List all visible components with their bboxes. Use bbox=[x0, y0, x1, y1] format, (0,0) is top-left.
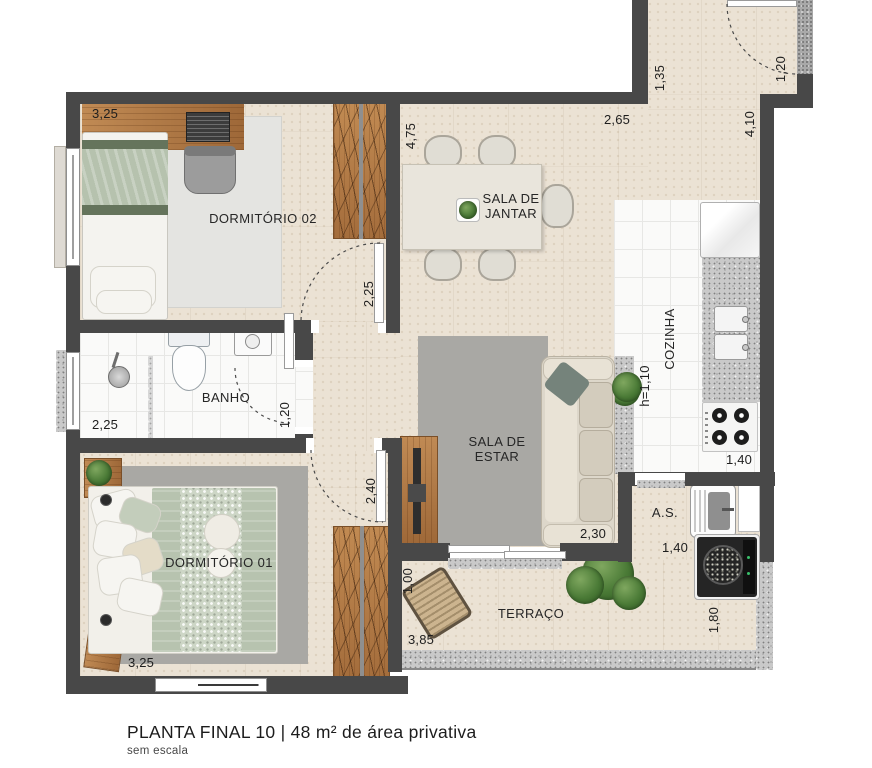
dim-dorm02-top: 3,25 bbox=[92, 106, 118, 121]
dim-as-depth: 1,80 bbox=[706, 590, 722, 650]
wall-dorm02-east bbox=[386, 92, 400, 333]
laptop-icon bbox=[186, 112, 230, 142]
washer-led-icon bbox=[747, 556, 750, 559]
terraco-plant-icon bbox=[612, 576, 646, 610]
dim-banho-width: 2,25 bbox=[92, 417, 118, 432]
dorm02-door-jamb bbox=[311, 320, 319, 333]
single-bed-pillow-2 bbox=[96, 290, 152, 314]
sliding-door-pane bbox=[504, 551, 566, 559]
lamp-icon bbox=[100, 614, 112, 626]
laundry-tank-ridges bbox=[694, 490, 708, 532]
label-banho: BANHO bbox=[196, 391, 256, 406]
fridge bbox=[700, 202, 760, 258]
dim-estar-width: 2,30 bbox=[580, 526, 606, 541]
wall-banho-south bbox=[66, 438, 308, 453]
sliding-door-pane bbox=[448, 545, 510, 553]
dim-dorm01-width: 3,25 bbox=[128, 655, 154, 670]
banho-door-opening bbox=[295, 366, 313, 428]
dim-banho-door: 1,20 bbox=[277, 385, 293, 445]
label-terraco: TERRAÇO bbox=[496, 607, 566, 622]
wall-top bbox=[66, 92, 648, 104]
dim-dorm01-door: 2,40 bbox=[363, 461, 379, 521]
terraco-south-parapet bbox=[388, 650, 772, 670]
laundry-tank-basin bbox=[708, 492, 730, 530]
dim-as-width: 1,40 bbox=[662, 540, 688, 555]
dim-jantar-top: 2,65 bbox=[604, 112, 630, 127]
dorm02-window bbox=[66, 148, 80, 266]
floor-plan: 3,25 2,25 4,75 2,65 1,35 1,20 4,10 h=1,1… bbox=[0, 0, 872, 768]
dim-jantar-left: 4,75 bbox=[403, 106, 419, 166]
as-threshold bbox=[637, 480, 685, 488]
plan-title: PLANTA FINAL 10 | 48 m² de área privativ… bbox=[127, 722, 477, 743]
banho-sink-bowl-icon bbox=[245, 334, 260, 349]
label-sala-estar: SALA DE ESTAR bbox=[454, 435, 540, 465]
dim-terraco-width: 3,85 bbox=[408, 632, 434, 647]
shower-divider bbox=[148, 356, 153, 438]
dorm01-window bbox=[155, 678, 267, 692]
stove-burner-icon bbox=[712, 408, 727, 423]
dim-entry-door: 1,20 bbox=[773, 39, 789, 99]
dim-dorm02-door: 2,25 bbox=[361, 264, 377, 324]
toilet-bowl bbox=[172, 345, 206, 391]
stove-burner-icon bbox=[734, 430, 749, 445]
entry-hall-mat bbox=[797, 0, 813, 74]
wall-dorm02-south bbox=[66, 320, 313, 333]
label-sala-jantar-line1: SALA DE bbox=[468, 192, 554, 207]
banho-window bbox=[66, 352, 80, 430]
shower-head-icon bbox=[108, 366, 130, 388]
washer-drum-icon bbox=[703, 545, 743, 585]
dining-chair bbox=[424, 247, 462, 281]
kitchen-faucet-icon bbox=[742, 316, 749, 323]
bed-round-cushion bbox=[204, 514, 240, 550]
single-bed-header bbox=[82, 140, 168, 149]
stove bbox=[702, 402, 758, 452]
wall-estar-terraco-east bbox=[560, 543, 632, 561]
dim-entry-width: 1,35 bbox=[652, 48, 668, 108]
dining-chair bbox=[478, 247, 516, 281]
banho-door-jamb bbox=[295, 360, 313, 367]
stove-burner-icon bbox=[712, 430, 727, 445]
hall-floor bbox=[311, 322, 400, 453]
dim-entry-depth: 4,10 bbox=[742, 94, 758, 154]
dim-terraco-depth: 1,00 bbox=[400, 551, 416, 611]
nightstand-plant-icon bbox=[86, 460, 112, 486]
slider-sill bbox=[448, 558, 562, 569]
label-cozinha: COZINHA bbox=[663, 294, 679, 384]
desk-chair-back bbox=[184, 146, 236, 156]
plan-scale-note: sem escala bbox=[127, 745, 188, 757]
dorm01-wardrobe-rail bbox=[360, 526, 364, 678]
laundry-tap-icon bbox=[722, 508, 734, 511]
sofa-cushion bbox=[579, 430, 613, 476]
as-shelf bbox=[738, 484, 760, 532]
wall-as-east bbox=[760, 474, 774, 562]
washer-led-icon bbox=[747, 572, 750, 575]
label-sala-estar-line1: SALA DE bbox=[454, 435, 540, 450]
stove-controls bbox=[705, 410, 708, 444]
banho-door-jamb bbox=[295, 427, 313, 434]
banho-door-leaf bbox=[284, 313, 294, 369]
label-sala-estar-line2: ESTAR bbox=[454, 450, 540, 465]
single-bed-blanket bbox=[82, 149, 168, 205]
label-sala-jantar: SALA DE JANTAR bbox=[468, 192, 554, 222]
dim-counter-height: h=1,10 bbox=[637, 356, 653, 416]
wall-right bbox=[760, 94, 774, 474]
stove-burner-icon bbox=[734, 408, 749, 423]
single-bed-band bbox=[82, 205, 168, 215]
label-area-servico: A.S. bbox=[648, 506, 682, 521]
dorm02-wardrobe-rail bbox=[359, 103, 363, 239]
dorm01-door-jamb bbox=[306, 438, 314, 453]
sofa-cushion bbox=[579, 478, 613, 522]
banho-window-sill bbox=[56, 350, 66, 432]
dim-cozinha-width: 1,40 bbox=[726, 452, 752, 467]
label-dormitorio02: DORMITÓRIO 02 bbox=[192, 212, 334, 227]
tv-console-box bbox=[408, 484, 426, 502]
wall-corridor-west bbox=[632, 0, 648, 104]
washer-panel bbox=[743, 540, 755, 594]
label-sala-jantar-line2: JANTAR bbox=[468, 207, 554, 222]
kitchen-faucet-icon bbox=[742, 344, 749, 351]
dorm02-window-sill bbox=[54, 146, 66, 268]
terraco-plant-icon bbox=[566, 566, 604, 604]
label-dormitorio01: DORMITÓRIO 01 bbox=[148, 556, 290, 571]
entry-door-leaf bbox=[727, 0, 797, 7]
lamp-icon bbox=[100, 494, 112, 506]
